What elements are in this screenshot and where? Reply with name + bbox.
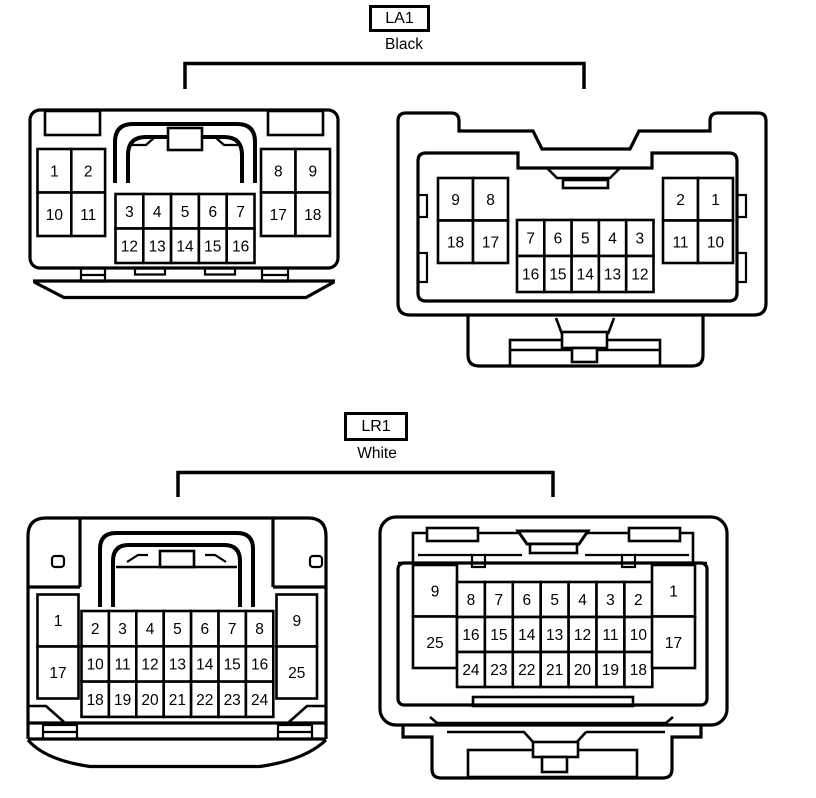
latch-tab bbox=[168, 128, 202, 150]
pin-number: 5 bbox=[173, 621, 182, 638]
pin-number: 8 bbox=[486, 192, 495, 209]
pin-number: 21 bbox=[169, 692, 186, 709]
pin-number: 12 bbox=[141, 656, 158, 673]
pin-number: 23 bbox=[224, 692, 241, 709]
pin-number: 19 bbox=[602, 662, 619, 679]
pin-number: 6 bbox=[200, 621, 209, 638]
pin-number: 24 bbox=[251, 692, 269, 709]
la1-bracket-line bbox=[185, 64, 584, 90]
pin-number: 16 bbox=[251, 656, 268, 673]
pin-number: 15 bbox=[224, 656, 241, 673]
pin-number: 15 bbox=[490, 627, 507, 644]
pin-number: 17 bbox=[270, 207, 287, 224]
pin-number: 4 bbox=[578, 592, 587, 609]
pin-number: 18 bbox=[630, 662, 647, 679]
la1-code-label: LA1 bbox=[385, 10, 413, 28]
pin-number: 10 bbox=[707, 234, 725, 251]
pin-number: 9 bbox=[308, 163, 317, 180]
pin-number: 2 bbox=[84, 163, 93, 180]
pin-number: 3 bbox=[636, 231, 645, 248]
la1-component-pin-grid: 981817765431615141312211110 bbox=[438, 178, 733, 292]
pin-number: 1 bbox=[669, 583, 678, 600]
la1-code-box: LA1 bbox=[369, 5, 430, 32]
pin-number: 4 bbox=[153, 204, 162, 221]
pin-number: 8 bbox=[274, 163, 283, 180]
pin-number: 14 bbox=[176, 238, 194, 255]
latch-tab bbox=[160, 551, 194, 567]
pin-number: 11 bbox=[115, 656, 131, 673]
lr1-code-box: LR1 bbox=[344, 412, 408, 441]
lr1-color-label: White bbox=[327, 445, 427, 463]
lr1-code-label: LR1 bbox=[361, 418, 390, 436]
pin-number: 1 bbox=[50, 163, 59, 180]
pin-number: 25 bbox=[288, 665, 305, 682]
pin-number: 5 bbox=[181, 204, 190, 221]
pin-number: 20 bbox=[574, 662, 592, 679]
pin-number: 15 bbox=[204, 238, 221, 255]
pin-number: 13 bbox=[546, 627, 563, 644]
pin-number: 6 bbox=[522, 592, 531, 609]
pin-number: 9 bbox=[431, 583, 440, 600]
pin-number: 10 bbox=[87, 656, 105, 673]
pin-number: 10 bbox=[630, 627, 648, 644]
pin-number: 9 bbox=[292, 613, 301, 630]
pin-number: 9 bbox=[451, 192, 460, 209]
pin-number: 11 bbox=[672, 234, 688, 251]
pin-number: 1 bbox=[711, 192, 720, 209]
pin-number: 13 bbox=[169, 656, 186, 673]
lr1-component-side-connector: 9258765432161514131211102423222120191811… bbox=[380, 517, 727, 778]
pin-number: 3 bbox=[118, 621, 127, 638]
pin-number: 12 bbox=[121, 238, 138, 255]
pin-number: 2 bbox=[634, 592, 643, 609]
connector-pinout-page: 121011345671213141516891718 981817765431… bbox=[0, 0, 816, 798]
pin-number: 11 bbox=[602, 627, 618, 644]
pin-number: 6 bbox=[208, 204, 217, 221]
pin-number: 13 bbox=[604, 267, 621, 284]
pin-number: 18 bbox=[447, 234, 464, 251]
pin-number: 14 bbox=[518, 627, 536, 644]
pin-number: 21 bbox=[546, 662, 563, 679]
pin-number: 6 bbox=[554, 231, 563, 248]
pin-number: 2 bbox=[91, 621, 100, 638]
la1-harness-side-connector: 121011345671213141516891718 bbox=[30, 110, 338, 298]
pin-number: 17 bbox=[482, 234, 499, 251]
pin-number: 24 bbox=[462, 662, 480, 679]
pin-number: 16 bbox=[232, 238, 249, 255]
la1-harness-pin-grid: 121011345671213141516891718 bbox=[38, 149, 331, 263]
pin-number: 15 bbox=[549, 267, 566, 284]
la1-color-label: Black bbox=[354, 36, 454, 54]
pin-number: 7 bbox=[526, 231, 535, 248]
lr1-bracket-line bbox=[178, 473, 553, 498]
pin-number: 5 bbox=[550, 592, 559, 609]
pin-number: 5 bbox=[581, 231, 590, 248]
pin-number: 25 bbox=[426, 635, 443, 652]
pin-number: 4 bbox=[608, 231, 617, 248]
lr1-harness-pin-grid: 1172345678101112131415161819202122232492… bbox=[38, 595, 318, 717]
pin-number: 17 bbox=[49, 665, 66, 682]
pin-number: 18 bbox=[304, 207, 321, 224]
pin-number: 14 bbox=[577, 267, 595, 284]
lr1-harness-side-connector: 1172345678101112131415161819202122232492… bbox=[28, 518, 326, 767]
pin-number: 12 bbox=[574, 627, 591, 644]
pin-number: 23 bbox=[490, 662, 507, 679]
pin-number: 14 bbox=[196, 656, 214, 673]
pin-number: 16 bbox=[462, 627, 479, 644]
pin-number: 1 bbox=[54, 613, 63, 630]
pin-number: 8 bbox=[467, 592, 476, 609]
pin-number: 3 bbox=[606, 592, 615, 609]
pin-number: 4 bbox=[146, 621, 155, 638]
pin-number: 7 bbox=[228, 621, 237, 638]
pin-number: 22 bbox=[196, 692, 213, 709]
pin-number: 8 bbox=[255, 621, 264, 638]
pin-number: 7 bbox=[236, 204, 245, 221]
pin-number: 19 bbox=[114, 692, 131, 709]
pin-number: 16 bbox=[522, 267, 539, 284]
pin-number: 10 bbox=[46, 207, 64, 224]
pin-number: 20 bbox=[141, 692, 159, 709]
pin-number: 13 bbox=[149, 238, 166, 255]
pin-number: 7 bbox=[495, 592, 504, 609]
la1-component-side-connector: 981817765431615141312211110 bbox=[398, 113, 766, 366]
lr1-component-pin-grid: 9258765432161514131211102423222120191811… bbox=[413, 565, 695, 687]
pin-number: 18 bbox=[87, 692, 104, 709]
pin-number: 3 bbox=[125, 204, 134, 221]
pin-number: 12 bbox=[631, 267, 648, 284]
pin-number: 17 bbox=[665, 635, 682, 652]
pin-number: 22 bbox=[518, 662, 535, 679]
pin-number: 2 bbox=[676, 192, 685, 209]
pin-number: 11 bbox=[80, 207, 96, 224]
connector-diagram-art: 121011345671213141516891718 981817765431… bbox=[0, 0, 816, 798]
